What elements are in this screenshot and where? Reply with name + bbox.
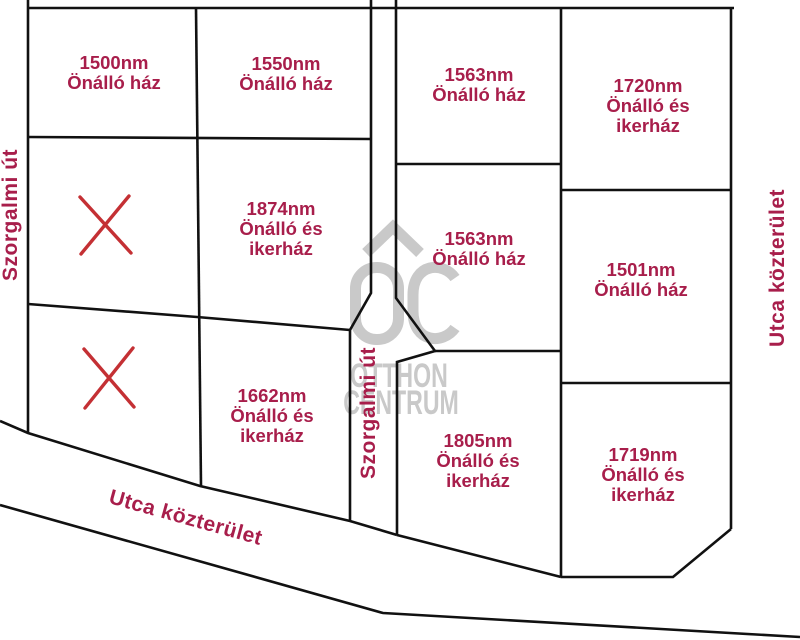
parcel-area: 1563nm — [445, 228, 514, 249]
oc-logo-roof-icon — [366, 227, 420, 253]
parcel-type: Önálló ház — [432, 248, 526, 269]
parcel-label-1874: 1874nm Önálló és ikerház — [239, 198, 322, 259]
parcel-label-1805: 1805nm Önálló és ikerház — [436, 430, 519, 491]
parcel-type: ikerház — [616, 115, 680, 136]
parcel-area: 1719nm — [609, 444, 678, 465]
parcel-label-1662: 1662nm Önálló és ikerház — [230, 385, 313, 446]
oc-logo-o-icon — [356, 268, 399, 340]
x-marker-icon — [84, 348, 134, 408]
x-marker-icon — [80, 196, 131, 254]
parcel-type: Önálló ház — [432, 84, 526, 105]
parcel-type: Önálló és — [230, 405, 313, 426]
x-marker-lower — [84, 348, 134, 408]
parcel-type: ikerház — [240, 425, 304, 446]
parcel-label-1719: 1719nm Önálló és ikerház — [601, 444, 684, 505]
parcel-type: Önálló és — [601, 464, 684, 485]
parcel-label-1501: 1501nm Önálló ház — [594, 259, 688, 300]
parcel-type: Önálló ház — [594, 279, 688, 300]
slanted-divider-left — [28, 304, 350, 330]
parcel-type: Önálló ház — [67, 72, 161, 93]
road-label-szorgalmi-ut-center: Szorgalmi út — [357, 347, 380, 479]
row-divider-left — [28, 137, 371, 139]
parcel-area: 1500nm — [80, 52, 149, 73]
parcel-area: 1501nm — [607, 259, 676, 280]
parcel-type: Önálló és — [436, 450, 519, 471]
parcel-map: OTTHON CENTRUM — [0, 0, 800, 640]
road-label-utca-kozterulet-right: Utca közterület — [766, 189, 789, 347]
parcel-type: Önálló és — [606, 95, 689, 116]
road-label-szorgalmi-ut-left: Szorgalmi út — [0, 149, 22, 281]
parcel-area: 1720nm — [614, 75, 683, 96]
parcel-type: ikerház — [249, 238, 313, 259]
parcel-area: 1662nm — [238, 385, 307, 406]
parcel-type: ikerház — [446, 470, 510, 491]
parcel-label-1550: 1550nm Önálló ház — [239, 53, 333, 94]
parcel-area: 1874nm — [247, 198, 316, 219]
parcel-label-1500: 1500nm Önálló ház — [67, 52, 161, 93]
parcel-type: Önálló ház — [239, 73, 333, 94]
corner-cut-1719 — [561, 529, 731, 577]
parcel-map-page: OTTHON CENTRUM — [0, 0, 800, 640]
parcel-label-1563-upper: 1563nm Önálló ház — [432, 64, 526, 105]
parcel-type: Önálló és — [239, 218, 322, 239]
parcel-area: 1805nm — [444, 430, 513, 451]
parcel-label-1563-middle: 1563nm Önálló ház — [432, 228, 526, 269]
parcel-label-1720: 1720nm Önálló és ikerház — [606, 75, 689, 136]
bottom-edge-1805 — [397, 535, 561, 577]
parcel-type: ikerház — [611, 484, 675, 505]
column1-divider — [196, 8, 201, 486]
x-marker-upper — [80, 196, 131, 254]
parcel-area: 1550nm — [252, 53, 321, 74]
parcel-area: 1563nm — [445, 64, 514, 85]
